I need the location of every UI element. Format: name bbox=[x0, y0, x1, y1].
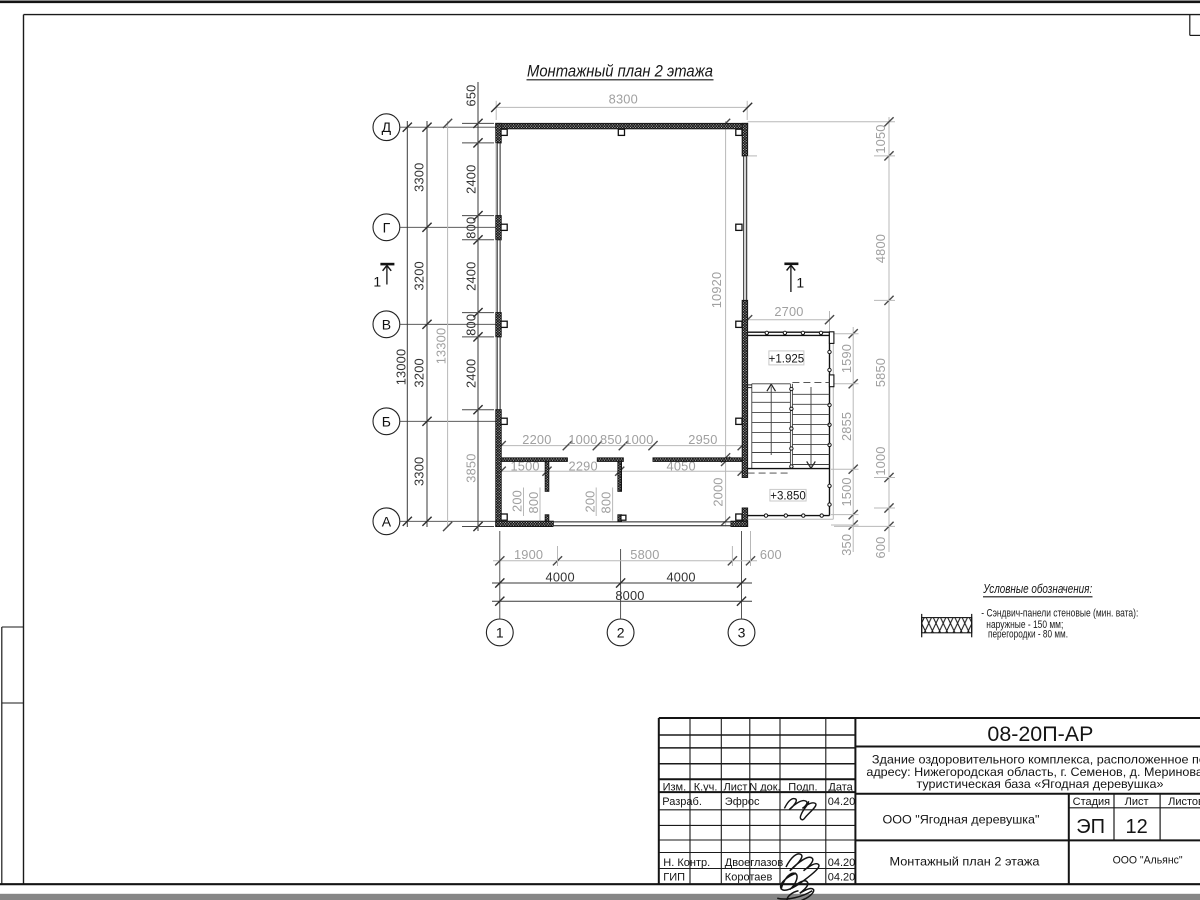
svg-text:2000: 2000 bbox=[710, 477, 725, 506]
svg-text:2950: 2950 bbox=[688, 432, 717, 447]
svg-text:1500: 1500 bbox=[839, 477, 854, 506]
svg-text:3850: 3850 bbox=[464, 453, 479, 482]
svg-text:8300: 8300 bbox=[609, 92, 638, 107]
svg-text:Листов: Листов bbox=[1168, 796, 1200, 808]
svg-text:Разраб.: Разраб. bbox=[662, 796, 702, 808]
svg-text:2290: 2290 bbox=[569, 458, 598, 473]
svg-text:800: 800 bbox=[464, 314, 479, 336]
svg-text:600: 600 bbox=[760, 547, 782, 562]
svg-text:600: 600 bbox=[873, 537, 888, 559]
svg-text:200: 200 bbox=[582, 491, 597, 513]
svg-text:4000: 4000 bbox=[546, 570, 575, 585]
svg-text:5850: 5850 bbox=[873, 358, 888, 387]
svg-text:08-20П-АР: 08-20П-АР bbox=[987, 723, 1093, 746]
svg-text:Г: Г bbox=[383, 219, 391, 235]
svg-text:2855: 2855 bbox=[839, 412, 854, 441]
svg-text:800: 800 bbox=[464, 217, 479, 239]
svg-text:2400: 2400 bbox=[464, 165, 479, 194]
svg-text:+3.850: +3.850 bbox=[770, 491, 806, 503]
svg-text:Подп.: Подп. bbox=[788, 781, 817, 793]
svg-text:ООО "Ягодная деревушка": ООО "Ягодная деревушка" bbox=[883, 813, 1040, 827]
svg-text:Н. Контр.: Н. Контр. bbox=[663, 857, 710, 869]
svg-text:350: 350 bbox=[839, 534, 854, 556]
svg-text:04.20: 04.20 bbox=[828, 857, 856, 869]
svg-text:1: 1 bbox=[373, 274, 381, 290]
svg-text:- Сэндвич-панели стеновые (мин: - Сэндвич-панели стеновые (мин. вата): bbox=[981, 608, 1138, 620]
svg-text:3200: 3200 bbox=[412, 261, 427, 290]
svg-text:3300: 3300 bbox=[412, 457, 427, 486]
svg-text:+1.925: +1.925 bbox=[769, 353, 805, 365]
svg-text:1000: 1000 bbox=[873, 446, 888, 475]
svg-text:В: В bbox=[382, 316, 391, 332]
svg-text:2: 2 bbox=[617, 624, 625, 640]
svg-text:5800: 5800 bbox=[630, 547, 659, 562]
svg-text:туристическая база «Ягодная де: туристическая база «Ягодная деревушка» bbox=[917, 777, 1164, 791]
svg-text:800: 800 bbox=[599, 492, 614, 514]
svg-text:4000: 4000 bbox=[666, 570, 695, 585]
svg-text:Стадия: Стадия bbox=[1073, 796, 1111, 808]
svg-text:1050: 1050 bbox=[873, 124, 888, 153]
svg-text:Лист: Лист bbox=[724, 781, 748, 793]
svg-text:Эфрос: Эфрос bbox=[725, 796, 760, 808]
svg-text:1000: 1000 bbox=[568, 432, 597, 447]
svg-text:3: 3 bbox=[738, 624, 746, 640]
svg-text:2200: 2200 bbox=[522, 432, 551, 447]
svg-text:3300: 3300 bbox=[412, 163, 427, 192]
svg-text:Условные обозначения:: Условные обозначения: bbox=[982, 581, 1092, 596]
svg-text:800: 800 bbox=[526, 492, 541, 514]
svg-text:1900: 1900 bbox=[514, 547, 543, 562]
svg-text:К.уч.: К.уч. bbox=[694, 781, 718, 793]
svg-text:2400: 2400 bbox=[464, 262, 479, 291]
svg-text:Д: Д bbox=[382, 119, 392, 135]
svg-text:Изм.: Изм. bbox=[663, 781, 687, 793]
svg-text:ЭП: ЭП bbox=[1076, 816, 1105, 838]
svg-text:04.20: 04.20 bbox=[828, 872, 856, 884]
svg-text:Лист: Лист bbox=[1125, 796, 1149, 808]
svg-text:200: 200 bbox=[510, 490, 525, 512]
svg-text:Двоеглазов: Двоеглазов bbox=[725, 857, 784, 869]
svg-text:1000: 1000 bbox=[624, 432, 653, 447]
svg-text:1: 1 bbox=[796, 275, 804, 291]
svg-text:13300: 13300 bbox=[434, 328, 449, 365]
svg-text:650: 650 bbox=[464, 85, 479, 107]
svg-text:13000: 13000 bbox=[394, 349, 409, 386]
svg-text:1: 1 bbox=[496, 624, 504, 640]
svg-text:10920: 10920 bbox=[709, 272, 724, 309]
svg-text:3200: 3200 bbox=[412, 358, 427, 387]
svg-text:Дата: Дата bbox=[828, 781, 853, 793]
svg-text:04.20: 04.20 bbox=[828, 796, 856, 808]
svg-text:12: 12 bbox=[1125, 816, 1147, 838]
svg-text:Монтажный план 2 этажа: Монтажный план 2 этажа bbox=[890, 855, 1040, 869]
svg-text:850: 850 bbox=[600, 432, 622, 447]
svg-text:ГИП: ГИП bbox=[663, 872, 685, 884]
svg-text:2400: 2400 bbox=[464, 359, 479, 388]
svg-text:перегородки - 80 мм.: перегородки - 80 мм. bbox=[988, 628, 1068, 640]
svg-text:А: А bbox=[382, 513, 392, 529]
svg-text:2700: 2700 bbox=[774, 304, 803, 319]
svg-text:Коротаев: Коротаев bbox=[725, 872, 773, 884]
svg-text:Монтажный план 2 этажа: Монтажный план 2 этажа bbox=[527, 62, 713, 81]
svg-text:8000: 8000 bbox=[615, 588, 644, 603]
svg-text:4800: 4800 bbox=[873, 234, 888, 263]
svg-text:Б: Б bbox=[382, 413, 391, 429]
svg-text:N док.: N док. bbox=[749, 781, 780, 793]
svg-text:1590: 1590 bbox=[839, 344, 854, 373]
svg-text:ООО "Альянс": ООО "Альянс" bbox=[1113, 855, 1183, 867]
